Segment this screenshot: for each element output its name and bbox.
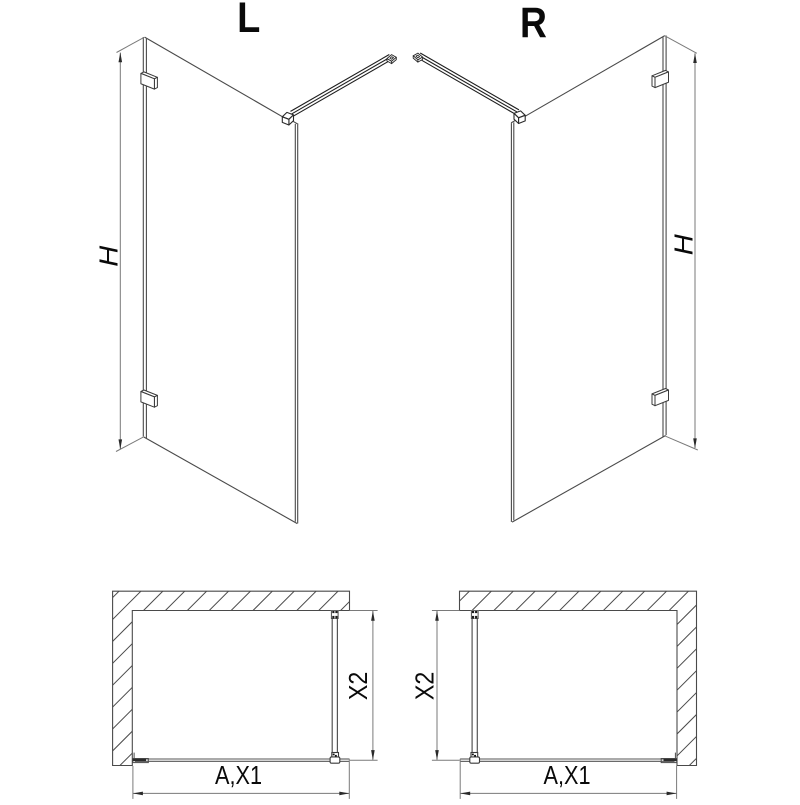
svg-text:L: L xyxy=(237,0,260,42)
svg-text:A,X1: A,X1 xyxy=(544,760,591,790)
svg-text:X2: X2 xyxy=(410,672,440,701)
svg-text:A,X1: A,X1 xyxy=(215,760,262,790)
svg-text:H: H xyxy=(668,234,698,255)
svg-text:R: R xyxy=(520,0,547,47)
svg-text:H: H xyxy=(94,245,124,266)
svg-text:X2: X2 xyxy=(343,672,373,701)
